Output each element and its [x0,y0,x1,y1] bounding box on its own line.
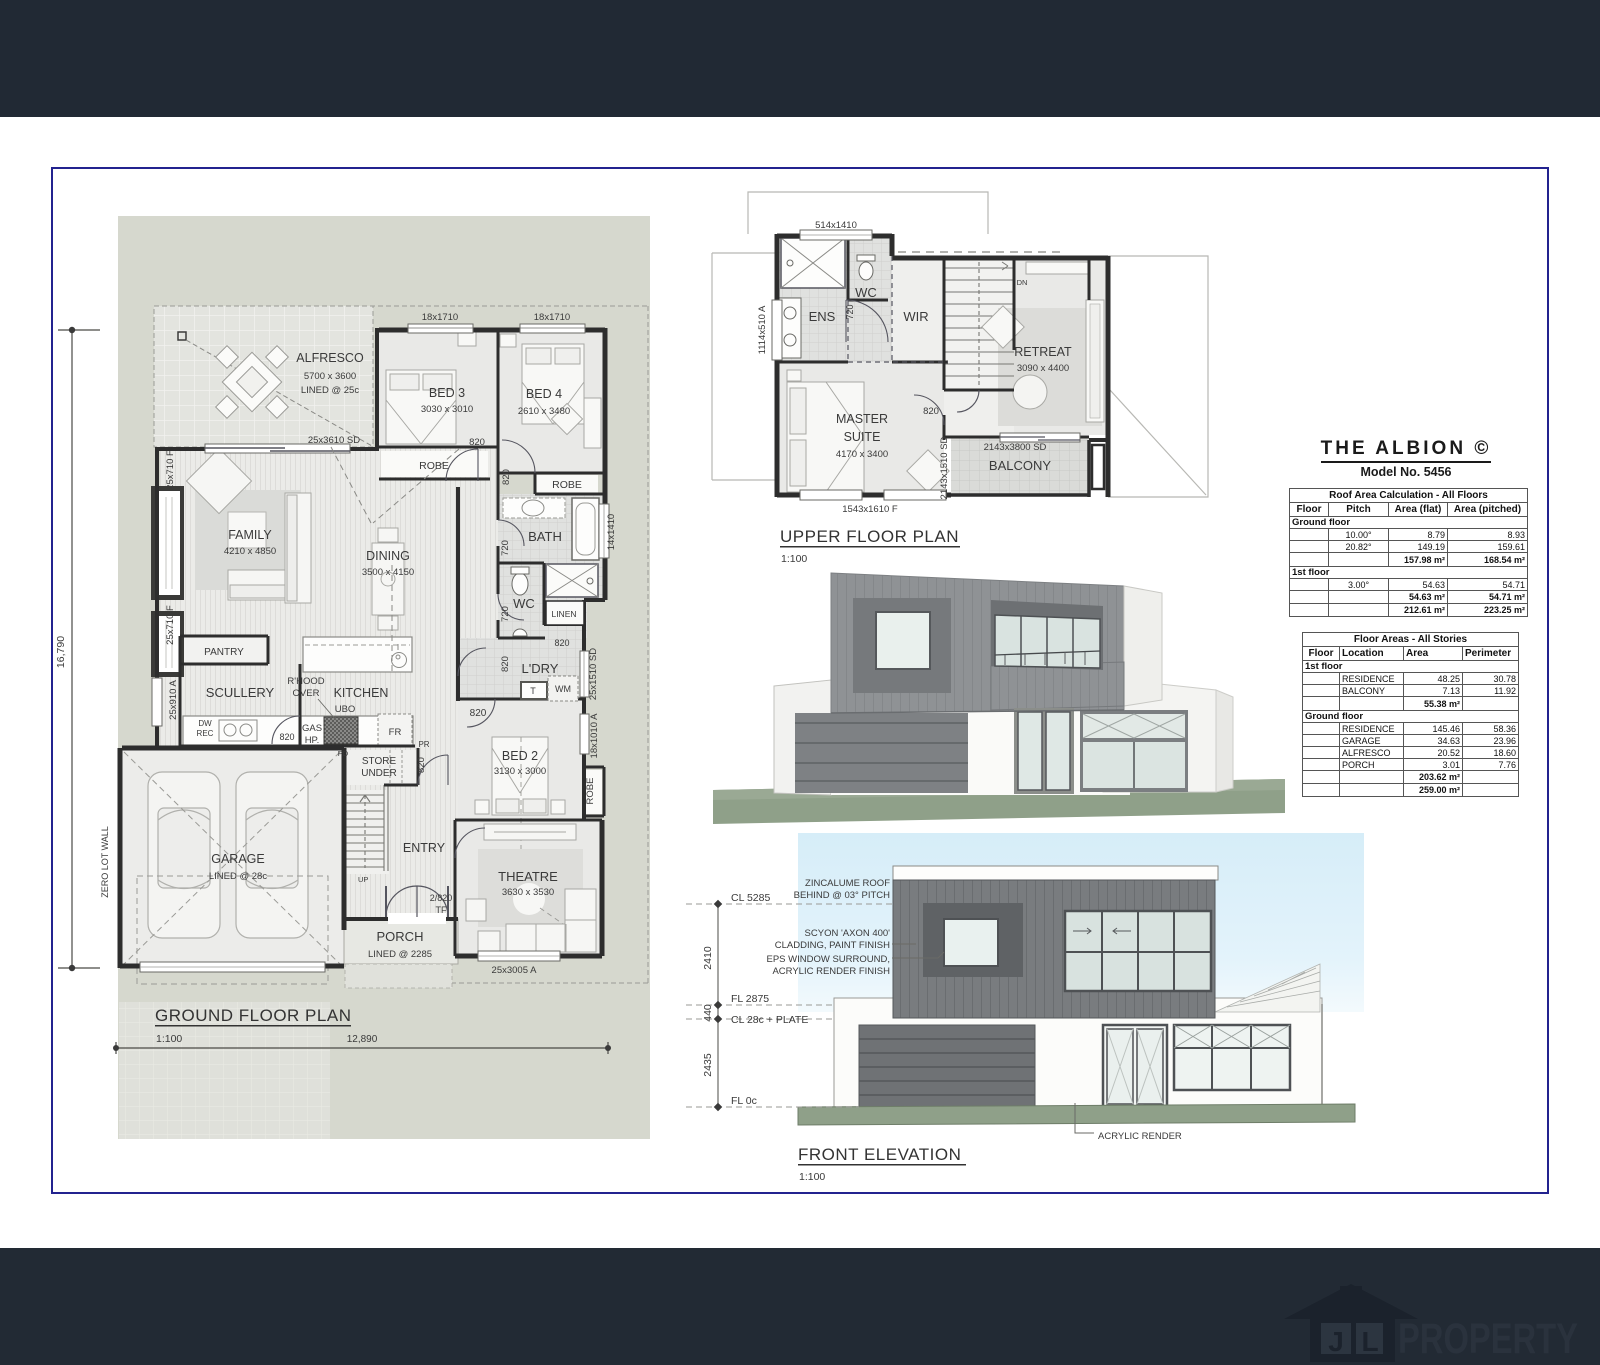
svg-text:ZERO LOT WALL: ZERO LOT WALL [100,826,110,898]
svg-text:GAS: GAS [302,723,322,734]
svg-text:UNDER: UNDER [361,768,397,779]
svg-text:FL 2875: FL 2875 [731,993,769,1005]
svg-text:GROUND FLOOR PLAN: GROUND FLOOR PLAN [155,1006,351,1025]
svg-text:ROBE: ROBE [552,479,582,491]
svg-text:BED 3: BED 3 [429,386,465,400]
svg-text:3630 x 3530: 3630 x 3530 [502,887,554,898]
svg-text:BEHIND @ 03° PITCH: BEHIND @ 03° PITCH [794,890,890,901]
svg-text:25x3005 A: 25x3005 A [492,965,538,976]
svg-text:BATH: BATH [528,529,562,544]
svg-text:R'HOOD: R'HOOD [287,676,324,687]
svg-text:1543x1610 F: 1543x1610 F [842,504,898,515]
svg-text:18x1010 A: 18x1010 A [589,713,600,759]
svg-text:GARAGE: GARAGE [211,852,265,866]
svg-text:1:100: 1:100 [156,1033,182,1045]
svg-text:ALFRESCO: ALFRESCO [296,351,364,365]
svg-text:820: 820 [470,708,487,719]
svg-text:820: 820 [501,469,512,485]
svg-text:820: 820 [279,732,294,742]
svg-text:TF: TF [436,905,447,915]
svg-text:1:100: 1:100 [799,1171,825,1183]
svg-text:DINING: DINING [366,549,410,563]
svg-text:4170 x 3400: 4170 x 3400 [836,449,888,460]
svg-text:ACRYLIC RENDER: ACRYLIC RENDER [1098,1131,1182,1142]
svg-text:WIR: WIR [903,309,928,324]
svg-text:820: 820 [416,757,427,773]
svg-text:514x1410: 514x1410 [815,220,857,231]
svg-text:STORE: STORE [362,756,397,767]
svg-text:LINEN: LINEN [551,609,576,619]
svg-text:LINED @ 25c: LINED @ 25c [301,385,359,396]
svg-text:CL 28c + PLATE: CL 28c + PLATE [731,1014,808,1026]
svg-text:LINED @ 2285: LINED @ 2285 [368,949,432,960]
svg-text:WC: WC [855,285,877,300]
svg-text:820: 820 [554,638,569,648]
svg-text:5700 x 3600: 5700 x 3600 [304,371,356,382]
svg-text:3130 x 3000: 3130 x 3000 [494,766,546,777]
svg-text:820: 820 [469,437,485,448]
svg-text:BALCONY: BALCONY [989,458,1051,473]
svg-text:BED 2: BED 2 [502,749,538,763]
svg-text:2143x3800 SD: 2143x3800 SD [984,442,1047,453]
svg-text:BED 4: BED 4 [526,387,562,401]
svg-text:THEATRE: THEATRE [498,869,558,884]
svg-text:WM: WM [555,684,571,694]
svg-text:820: 820 [500,656,511,672]
svg-text:FAMILY: FAMILY [228,528,272,542]
svg-text:720: 720 [500,606,511,622]
svg-text:UP: UP [358,875,368,884]
svg-text:T: T [530,686,536,696]
svg-text:CL 5285: CL 5285 [731,892,770,904]
svg-text:720: 720 [500,540,511,556]
svg-text:ROBE: ROBE [585,778,596,805]
svg-text:HP.: HP. [305,735,320,746]
svg-text:ENS: ENS [809,309,836,324]
svg-text:MASTER: MASTER [836,412,888,426]
svg-text:25x1510 SD: 25x1510 SD [588,648,599,700]
svg-text:RETREAT: RETREAT [1014,345,1072,359]
svg-text:25x910 A: 25x910 A [168,680,179,720]
svg-text:ROBE: ROBE [419,460,449,472]
svg-text:25x3610 SD: 25x3610 SD [308,435,360,446]
svg-text:UPPER FLOOR PLAN: UPPER FLOOR PLAN [780,527,959,546]
svg-text:4210 x 4850: 4210 x 4850 [224,546,276,557]
svg-text:PANTRY: PANTRY [204,647,244,658]
svg-text:12,890: 12,890 [347,1034,378,1045]
svg-text:OVER: OVER [293,688,320,699]
svg-text:3030 x 3010: 3030 x 3010 [421,404,473,415]
svg-text:PD: PD [338,749,349,758]
svg-text:PR: PR [418,740,429,749]
svg-text:LINED @ 28c: LINED @ 28c [209,871,267,882]
svg-text:KITCHEN: KITCHEN [334,686,389,700]
svg-text:ZINCALUME ROOF: ZINCALUME ROOF [805,878,890,889]
svg-text:1114x510 A: 1114x510 A [757,305,768,354]
svg-text:SCULLERY: SCULLERY [206,685,275,700]
svg-text:18x1710: 18x1710 [422,312,458,323]
svg-text:EPS WINDOW SURROUND,: EPS WINDOW SURROUND, [767,954,891,965]
svg-text:SUITE: SUITE [844,430,881,444]
svg-text:3500 x 4150: 3500 x 4150 [362,567,414,578]
svg-text:440: 440 [702,1004,714,1022]
svg-text:DN: DN [1017,278,1028,287]
svg-text:14x1410: 14x1410 [606,514,617,550]
svg-text:SCYON 'AXON 400': SCYON 'AXON 400' [805,928,891,939]
svg-text:FRONT ELEVATION: FRONT ELEVATION [798,1145,961,1164]
svg-text:2410: 2410 [702,946,714,970]
svg-text:2610 x 3480: 2610 x 3480 [518,406,570,417]
svg-text:ACRYLIC RENDER FINISH: ACRYLIC RENDER FINISH [772,966,890,977]
svg-text:2435: 2435 [702,1053,714,1077]
svg-text:UBO: UBO [335,704,356,715]
svg-text:PORCH: PORCH [377,929,424,944]
svg-text:2143x1510 SD: 2143x1510 SD [939,436,950,499]
svg-text:720: 720 [845,304,855,319]
svg-text:16,790: 16,790 [55,636,67,668]
svg-text:1:100: 1:100 [781,553,807,565]
svg-text:25x710 F: 25x710 F [165,450,176,490]
svg-text:18x1710: 18x1710 [534,312,570,323]
svg-text:820: 820 [923,406,939,417]
svg-text:FL 0c: FL 0c [731,1095,757,1107]
svg-text:WC: WC [513,596,535,611]
svg-text:25x710 F: 25x710 F [165,605,176,645]
svg-text:CLADDING, PAINT FINISH: CLADDING, PAINT FINISH [775,940,890,951]
svg-text:ENTRY: ENTRY [403,841,446,855]
svg-text:2/820: 2/820 [430,893,453,903]
svg-text:3090 x 4400: 3090 x 4400 [1017,363,1069,374]
svg-text:L'DRY: L'DRY [522,661,559,676]
svg-text:REC: REC [197,729,214,738]
svg-text:DW: DW [198,719,212,728]
svg-text:FR: FR [389,727,402,738]
